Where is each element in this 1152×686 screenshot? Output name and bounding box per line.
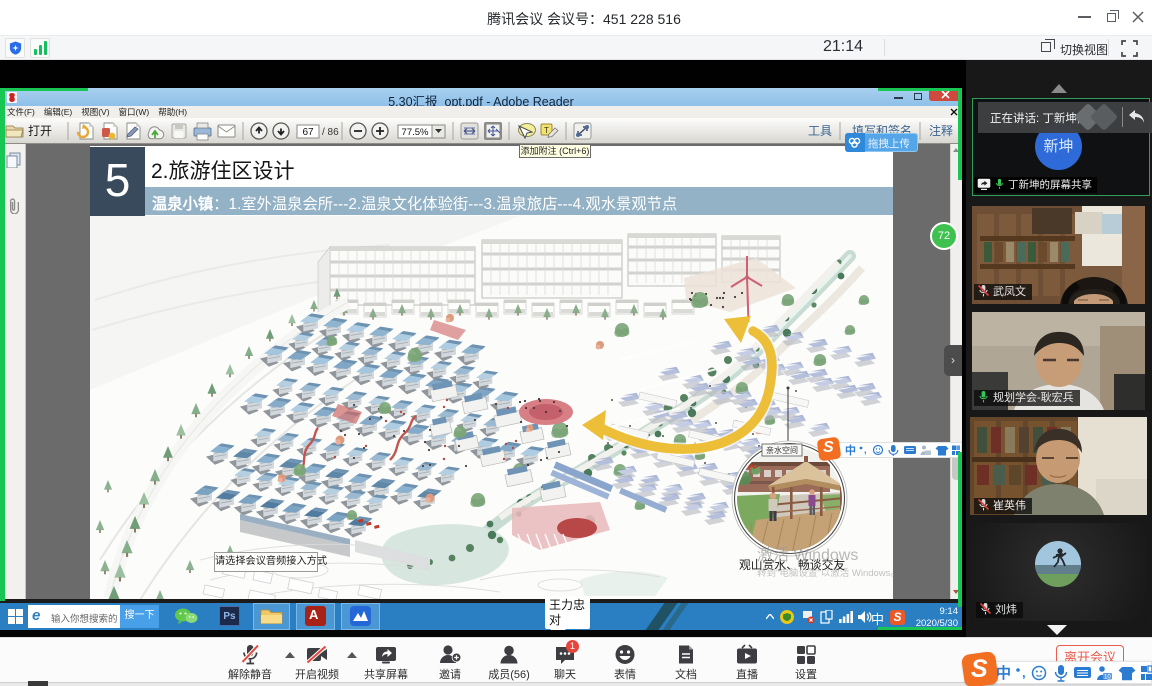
svg-text:注释: 注释 bbox=[929, 123, 953, 138]
svg-text:10: 10 bbox=[1104, 675, 1111, 681]
svg-text:中: 中 bbox=[845, 444, 856, 456]
svg-text:,: , bbox=[1022, 665, 1026, 680]
svg-text:77.5%: 77.5% bbox=[402, 127, 429, 138]
svg-text:/ 86: / 86 bbox=[322, 127, 339, 138]
svg-text:中: 中 bbox=[996, 664, 1011, 682]
svg-text:67: 67 bbox=[302, 127, 314, 138]
svg-text:亲水空间: 亲水空间 bbox=[766, 445, 798, 455]
svg-text:T: T bbox=[544, 126, 549, 135]
svg-text:打开: 打开 bbox=[28, 124, 52, 138]
svg-text:,: , bbox=[864, 445, 867, 455]
svg-text:工具: 工具 bbox=[808, 124, 832, 138]
